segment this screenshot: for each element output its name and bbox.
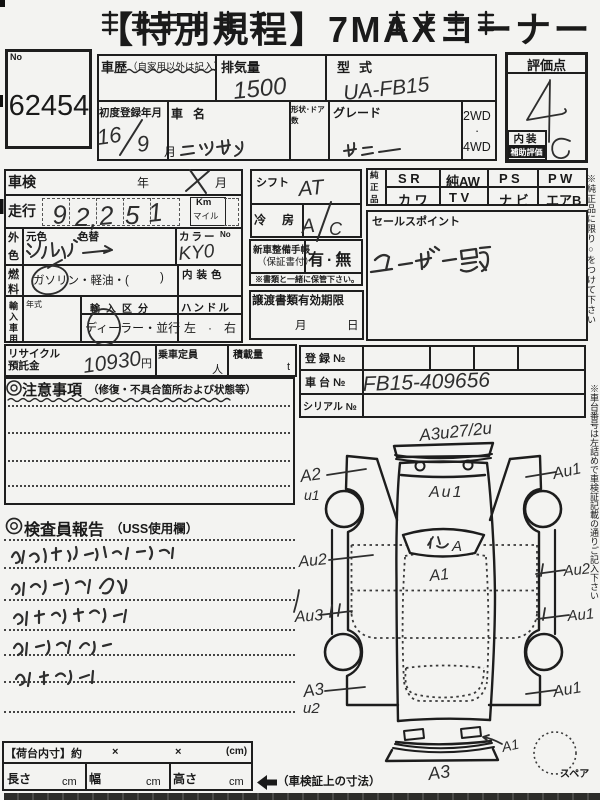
svg-text:u1: u1 <box>304 487 320 503</box>
svg-text:Au1: Au1 <box>550 460 582 483</box>
svg-text:Au1: Au1 <box>566 605 595 625</box>
svg-text:A3: A3 <box>426 761 452 784</box>
svg-text:Au1: Au1 <box>551 679 583 701</box>
svg-text:A3u27/2u: A3u27/2u <box>417 418 493 445</box>
svg-text:u2: u2 <box>303 700 320 717</box>
svg-text:A3: A3 <box>301 679 326 701</box>
svg-text:A: A <box>451 538 462 555</box>
svg-text:Au3: Au3 <box>293 607 324 626</box>
svg-text:A1: A1 <box>428 566 450 585</box>
svg-text:Au1: Au1 <box>428 484 463 501</box>
svg-text:A1: A1 <box>499 736 520 755</box>
svg-text:A2: A2 <box>298 464 323 486</box>
svg-text:Au2: Au2 <box>297 551 328 571</box>
